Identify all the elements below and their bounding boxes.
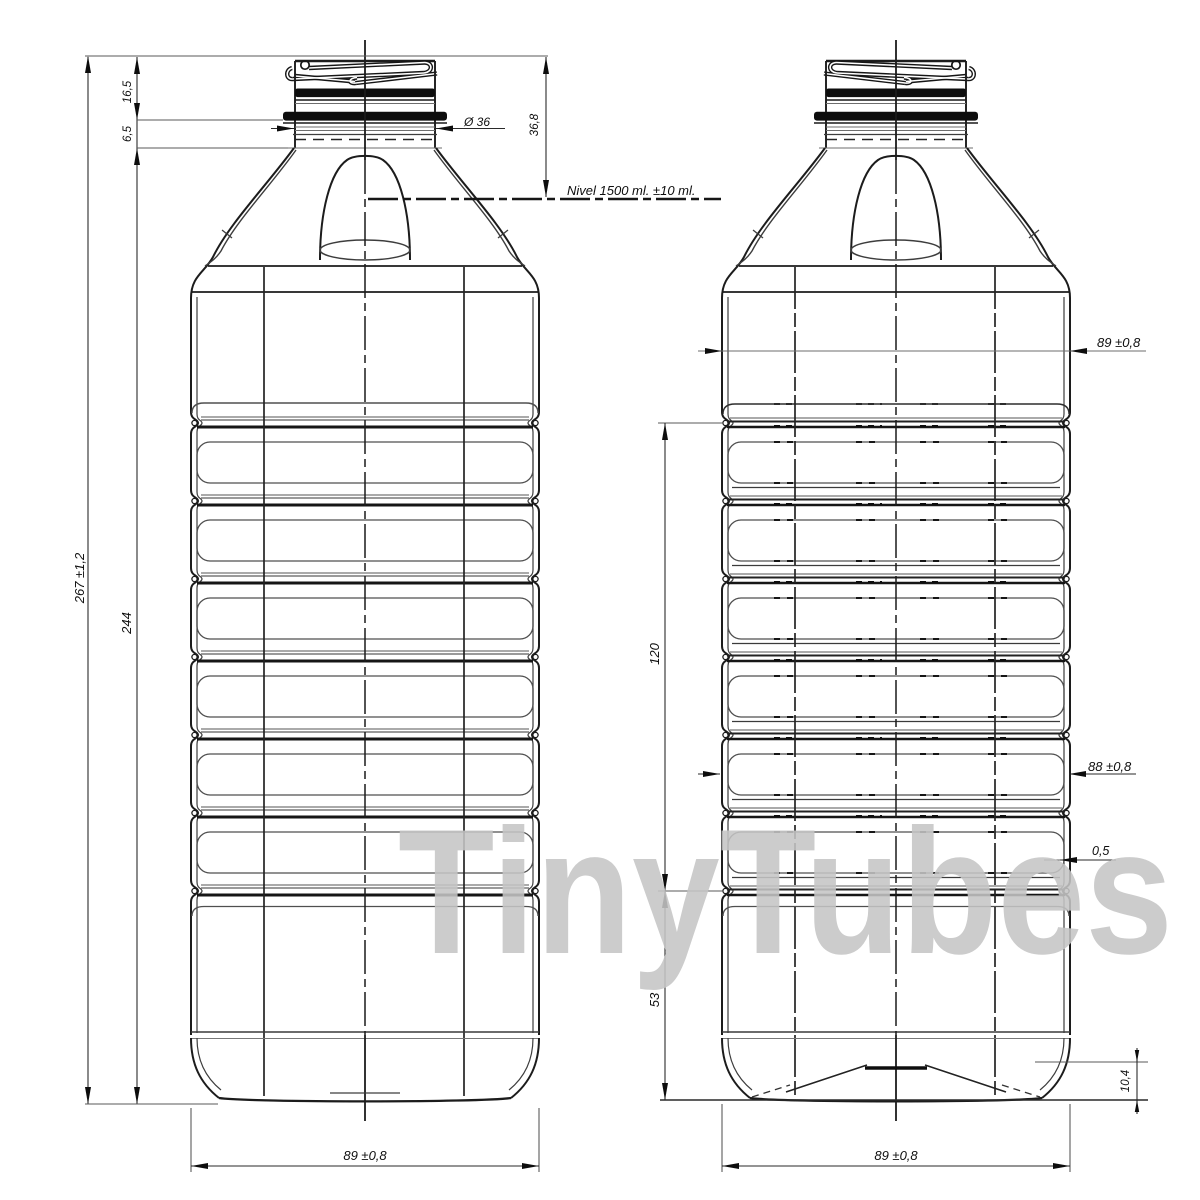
svg-text:Nivel 1500 ml. ±10 ml.: Nivel 1500 ml. ±10 ml. bbox=[567, 183, 696, 198]
svg-text:10,4: 10,4 bbox=[1120, 1070, 1132, 1092]
svg-text:244: 244 bbox=[119, 612, 134, 635]
svg-text:6,5: 6,5 bbox=[122, 125, 134, 142]
svg-text:120: 120 bbox=[647, 642, 662, 664]
svg-text:53: 53 bbox=[647, 992, 662, 1007]
svg-text:TinyTubes: TinyTubes bbox=[398, 792, 1173, 991]
svg-text:Ø 36: Ø 36 bbox=[463, 115, 490, 129]
svg-text:16,5: 16,5 bbox=[122, 80, 134, 103]
svg-text:89 ±0,8: 89 ±0,8 bbox=[1097, 335, 1141, 350]
svg-text:89 ±0,8: 89 ±0,8 bbox=[874, 1148, 918, 1163]
svg-text:88 ±0,8: 88 ±0,8 bbox=[1088, 759, 1132, 774]
svg-text:36,8: 36,8 bbox=[529, 113, 541, 136]
svg-text:267 ±1,2: 267 ±1,2 bbox=[72, 552, 87, 604]
svg-text:89 ±0,8: 89 ±0,8 bbox=[343, 1148, 387, 1163]
